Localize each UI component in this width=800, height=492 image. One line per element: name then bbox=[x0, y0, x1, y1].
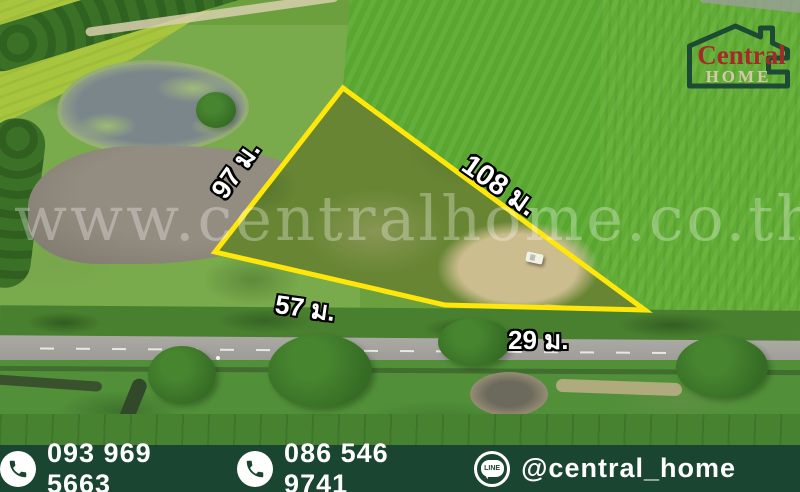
phone-number-1: 093 969 5663 bbox=[47, 438, 211, 492]
line-icon: LINE bbox=[474, 451, 510, 487]
dimension-label-bottom-right: 29 ม. bbox=[508, 320, 569, 361]
contact-bar: 093 969 5663 086 546 9741 LINE @central_… bbox=[0, 445, 800, 492]
line-id: @central_home bbox=[521, 453, 736, 484]
line-icon-label: LINE bbox=[481, 460, 504, 477]
logo-home-text: HOME bbox=[706, 67, 772, 86]
dimension-label-bottom-left: 57 ม. bbox=[272, 284, 338, 333]
logo-brand-text: Central bbox=[697, 40, 786, 70]
listing-image: www.centralhome.co.th 97 ม. 108 ม. 57 ม.… bbox=[0, 0, 800, 492]
watermark-text: www.centralhome.co.th bbox=[14, 182, 800, 255]
phone-number-2: 086 546 9741 bbox=[284, 438, 448, 492]
phone-icon bbox=[237, 451, 273, 487]
line-contact: LINE @central_home bbox=[474, 451, 736, 487]
phone-contact-2: 086 546 9741 bbox=[237, 438, 448, 492]
aerial-photo: www.centralhome.co.th 97 ม. 108 ม. 57 ม.… bbox=[0, 0, 800, 445]
phone-icon bbox=[0, 451, 36, 487]
brand-logo: Central HOME bbox=[655, 22, 800, 108]
phone-contact-1: 093 969 5663 bbox=[0, 438, 211, 492]
